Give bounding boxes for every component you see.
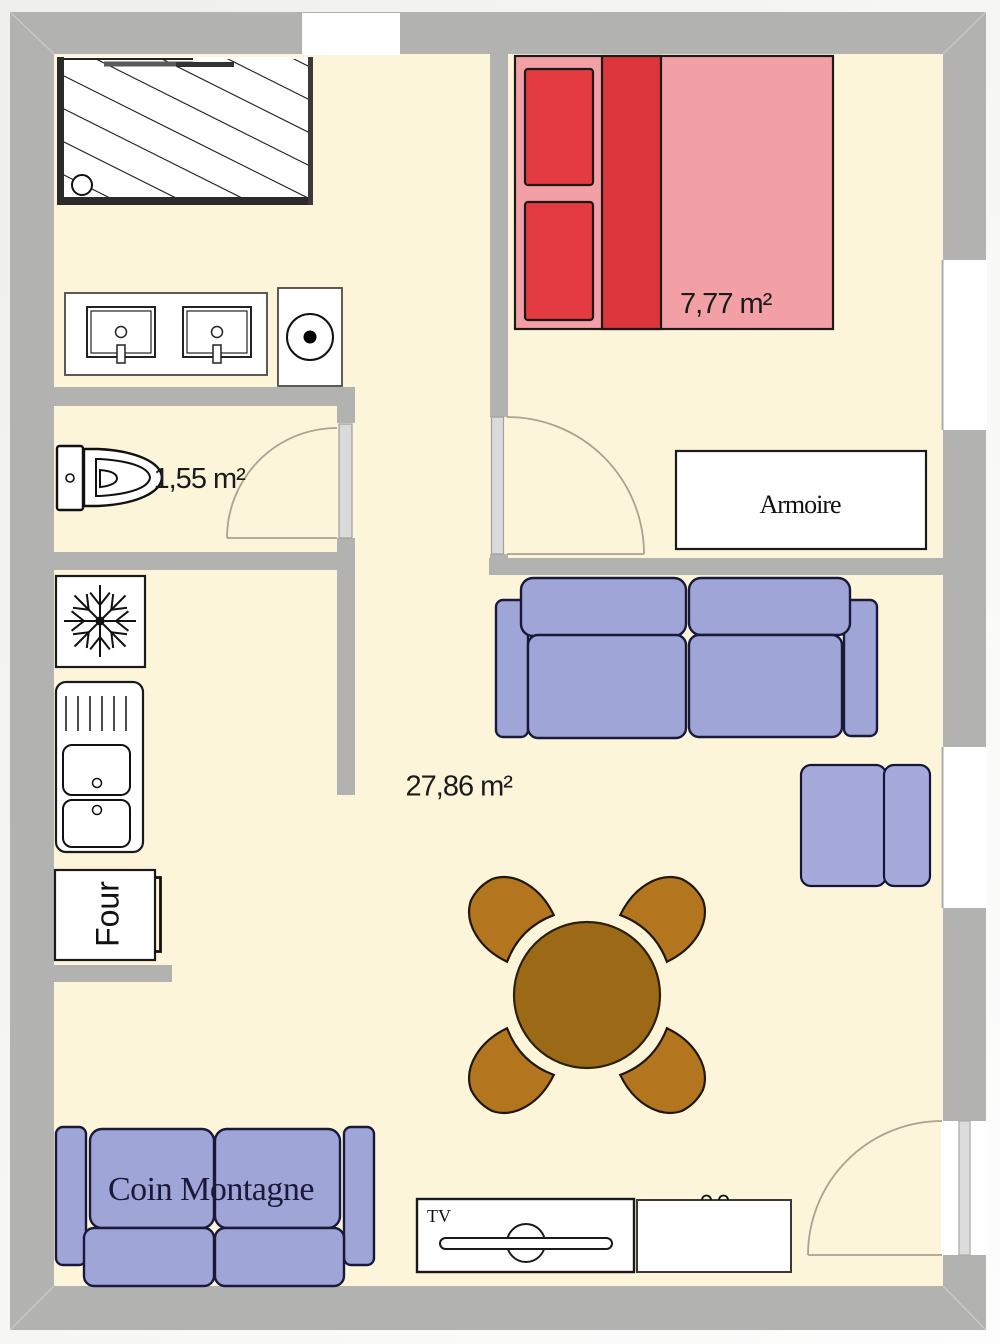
svg-text:7,77 m²: 7,77 m²: [680, 288, 773, 320]
svg-text:Armoire: Armoire: [759, 490, 841, 519]
svg-text:TV: TV: [427, 1206, 451, 1226]
svg-text:1,55 m²: 1,55 m²: [154, 463, 247, 495]
svg-text:Four: Four: [90, 881, 126, 947]
svg-text:27,86 m²: 27,86 m²: [406, 771, 514, 803]
svg-text:Coin Montagne: Coin Montagne: [108, 1171, 314, 1208]
